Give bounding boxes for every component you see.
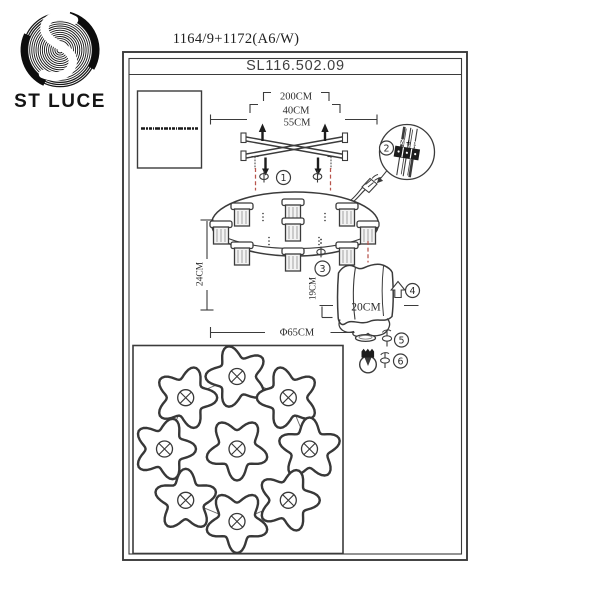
sku-code: SL116.502.09 <box>246 58 345 74</box>
dim-200cm: 200CM <box>280 92 313 103</box>
twist-screw-icon-2 <box>381 353 390 368</box>
svg-text:2: 2 <box>383 144 389 155</box>
suspension-dimensions: 200CM 40CM 55CM <box>211 92 378 129</box>
svg-text:6: 6 <box>397 357 403 368</box>
dim-24cm: 24CM <box>196 261 206 286</box>
step-2-badge: 2 <box>380 141 394 155</box>
svg-text:1: 1 <box>280 173 286 184</box>
dim-20cm: 20CM <box>351 302 380 314</box>
svg-text:5: 5 <box>398 336 404 347</box>
bulb-icon <box>360 349 377 373</box>
step-4-badge: 4 <box>391 282 419 298</box>
dim-40cm: 40CM <box>283 106 311 117</box>
assembly-diagram: SL116.502.09 200CM 40CM 55CM <box>0 0 600 600</box>
step-3-badge: 3 <box>315 261 330 276</box>
step-5-badge: 5 <box>395 333 409 347</box>
step-1-badge: 1 <box>277 171 291 185</box>
terminal-detail-circle: N L <box>380 125 435 180</box>
shade-flowers-group <box>138 346 340 553</box>
svg-text:3: 3 <box>319 264 325 275</box>
shade-ring-icon <box>356 335 376 342</box>
instruction-sheet: ST LUCE 1164/9+1172(A6/W) SL116.502.09 2… <box>0 0 600 600</box>
dim-55cm: 55CM <box>284 118 312 129</box>
twist-screw-icon <box>382 330 391 347</box>
shade-height-dimension: 19CM <box>308 277 333 318</box>
diameter-dimension: Φ65CM <box>211 327 355 339</box>
height-dimension: 24CM <box>196 220 214 310</box>
power-cable <box>351 175 381 203</box>
svg-text:4: 4 <box>409 286 415 297</box>
fabric-shade: 20CM <box>320 264 419 336</box>
step-6-badge: 6 <box>394 354 408 368</box>
dim-19cm: 19CM <box>308 277 318 300</box>
dim-65cm: Φ65CM <box>280 328 315 339</box>
